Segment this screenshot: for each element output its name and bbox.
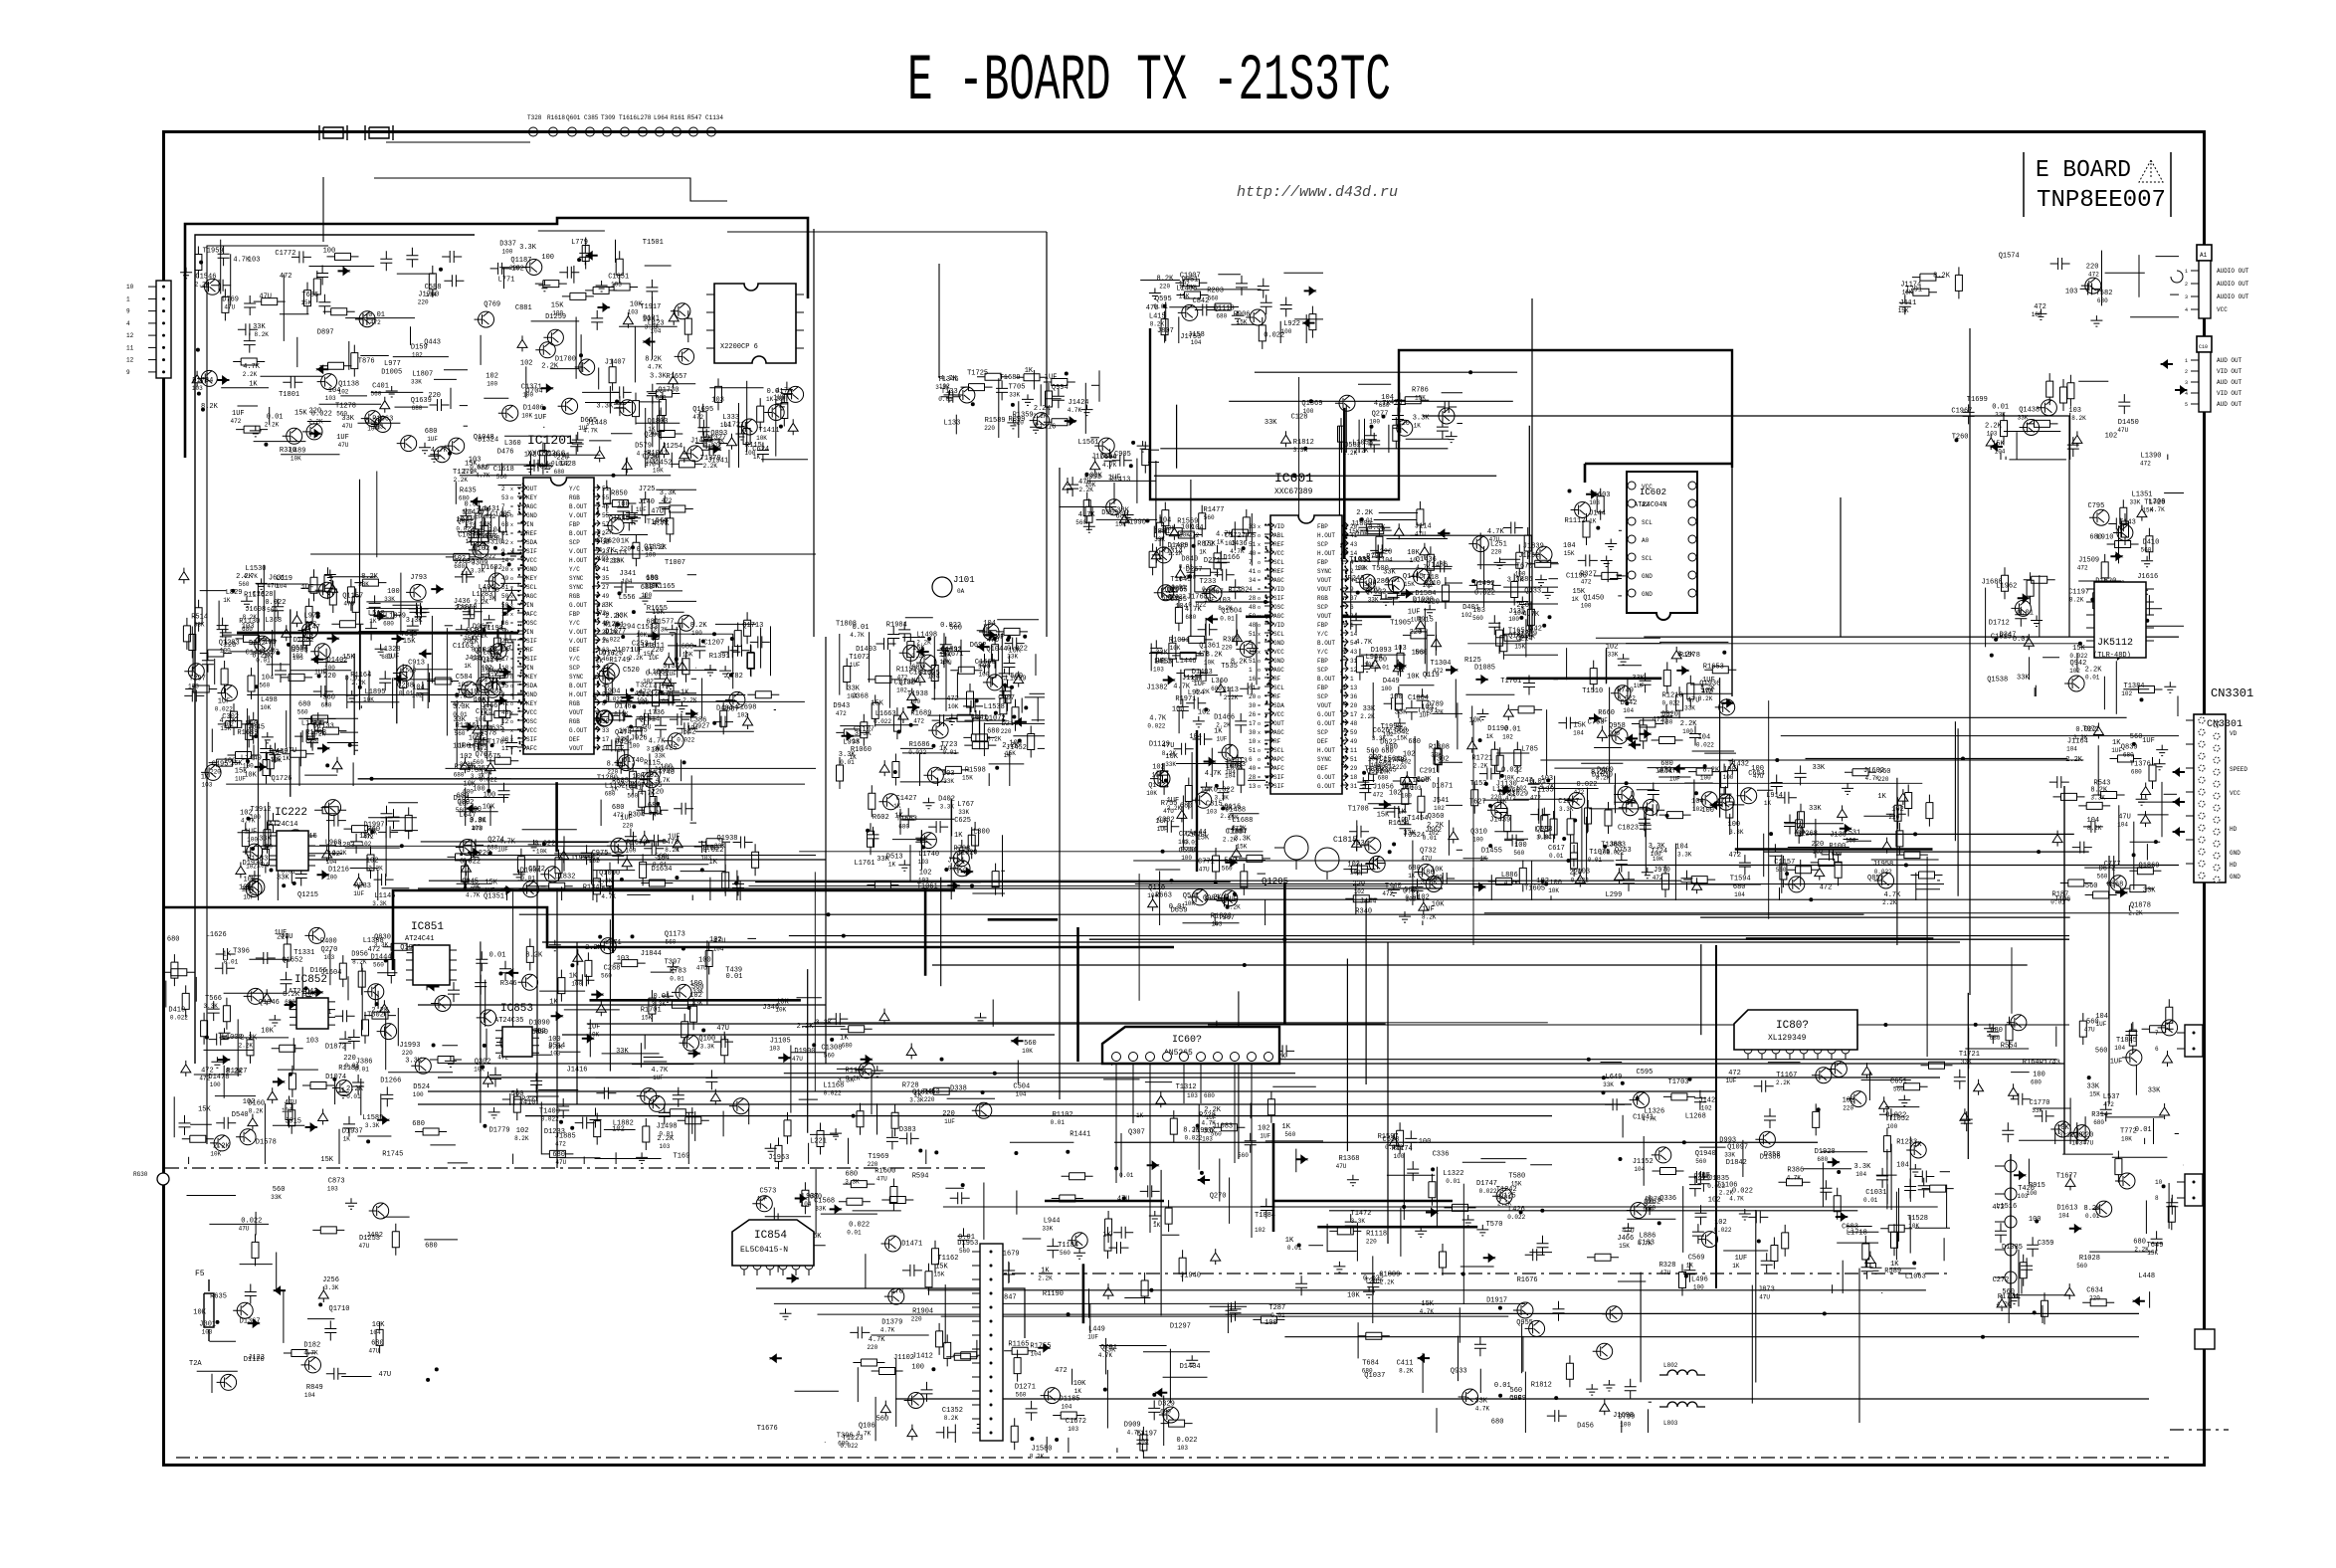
svg-text:100: 100 (1265, 1319, 1277, 1327)
svg-text:J310: J310 (487, 538, 503, 546)
svg-text:IC60?: IC60? (1172, 1035, 1202, 1046)
svg-text:L1498: L1498 (916, 632, 937, 640)
svg-text:33K: 33K (2017, 675, 2030, 683)
svg-text:2.2K: 2.2K (463, 469, 478, 476)
svg-text:B.OUT: B.OUT (569, 530, 587, 537)
svg-text:o: o (1258, 694, 1261, 700)
svg-text:x: x (1258, 730, 1261, 736)
svg-text:J418: J418 (465, 655, 482, 663)
svg-text:T1312: T1312 (1176, 1083, 1197, 1091)
svg-text:=: = (510, 621, 513, 627)
svg-text:R435: R435 (460, 487, 477, 494)
svg-text:4: 4 (1350, 559, 1354, 566)
svg-text:3.3K: 3.3K (2090, 794, 2105, 801)
svg-text:51: 51 (1350, 756, 1358, 763)
svg-text:C1665: C1665 (975, 659, 996, 667)
svg-text:D456: D456 (1577, 1422, 1594, 1430)
svg-text:104: 104 (1675, 843, 1688, 851)
svg-text:220: 220 (942, 1110, 955, 1118)
svg-text:H.OUT: H.OUT (1317, 532, 1335, 539)
svg-text:104: 104 (1734, 891, 1745, 898)
svg-text:T582: T582 (2096, 290, 2113, 297)
svg-text:2.2K: 2.2K (346, 1085, 364, 1093)
svg-text:Q1097: Q1097 (1727, 1144, 1748, 1152)
svg-text:J1412: J1412 (912, 1353, 933, 1361)
svg-text:Q1000: Q1000 (599, 870, 620, 878)
svg-text:10: 10 (126, 284, 134, 291)
svg-text:34: 34 (1350, 613, 1358, 620)
svg-text:0.01: 0.01 (2017, 610, 2034, 618)
svg-text:OSC: OSC (526, 718, 537, 725)
svg-text:100: 100 (698, 956, 711, 964)
svg-text:4.7K: 4.7K (1149, 714, 1167, 722)
svg-text:102: 102 (2121, 690, 2132, 697)
svg-text:D799: D799 (1619, 1413, 1636, 1421)
svg-text:IC854: IC854 (754, 1230, 787, 1242)
svg-text:D769: D769 (222, 296, 239, 304)
svg-text:T1162: T1162 (937, 1255, 958, 1263)
svg-text:=: = (510, 746, 513, 752)
svg-text:Q119: Q119 (1423, 672, 1440, 680)
svg-text:KEY: KEY (526, 494, 537, 501)
svg-text:51: 51 (1249, 658, 1257, 665)
svg-text:T535: T535 (1221, 663, 1238, 671)
svg-text:R1657: R1657 (667, 373, 687, 381)
svg-text:47U: 47U (696, 964, 707, 971)
svg-text:V.OUT: V.OUT (569, 629, 587, 636)
svg-text:472: 472 (231, 418, 242, 425)
svg-text:0.022: 0.022 (1662, 699, 1680, 706)
svg-text:47U: 47U (792, 1056, 803, 1063)
svg-text:DEF: DEF (569, 647, 580, 654)
svg-text:15K: 15K (642, 1015, 653, 1022)
svg-text:C842: C842 (1193, 297, 1210, 305)
svg-text:x: x (1258, 524, 1261, 530)
svg-text:D1324: D1324 (478, 436, 498, 444)
svg-text:AGC: AGC (1273, 613, 1284, 620)
svg-text:Q1730: Q1730 (658, 387, 679, 395)
svg-text:48: 48 (1249, 604, 1257, 611)
svg-text:J1608: J1608 (245, 606, 266, 614)
svg-text:0.01: 0.01 (399, 689, 414, 696)
svg-text:D1872: D1872 (325, 1043, 346, 1051)
svg-text:1UF: 1UF (459, 800, 470, 807)
svg-text:680: 680 (412, 1120, 425, 1128)
svg-text:4.7K: 4.7K (776, 388, 794, 396)
svg-text:D358: D358 (1764, 1151, 1781, 1159)
svg-text:4.7K: 4.7K (869, 1336, 886, 1344)
svg-text:8.2K: 8.2K (1162, 750, 1177, 757)
svg-text:4.7K: 4.7K (1173, 683, 1191, 690)
svg-text:J704: J704 (526, 388, 543, 396)
svg-text:VID: VID (1273, 622, 1284, 629)
svg-text:D1920: D1920 (1815, 1148, 1836, 1156)
svg-text:103: 103 (2068, 407, 2081, 415)
svg-text:G.OUT: G.OUT (1317, 711, 1335, 718)
svg-text:4.7K: 4.7K (1487, 528, 1505, 536)
svg-text:100: 100 (909, 698, 920, 705)
svg-text:0.022: 0.022 (170, 1014, 188, 1021)
svg-text:220: 220 (1491, 548, 1502, 555)
svg-text:C873: C873 (328, 1178, 345, 1186)
svg-text:x: x (510, 603, 513, 609)
svg-text:HD: HD (2230, 862, 2238, 869)
svg-text:8.2K: 8.2K (1399, 1368, 1414, 1375)
svg-text:31: 31 (1350, 783, 1358, 790)
svg-text:D476: D476 (497, 449, 514, 457)
svg-text:1UF: 1UF (1157, 826, 1168, 833)
svg-text:680: 680 (842, 1042, 853, 1049)
svg-text:560: 560 (1284, 1131, 1295, 1138)
svg-text:T1703: T1703 (1225, 761, 1246, 769)
svg-text:220: 220 (343, 1055, 356, 1063)
svg-text:680: 680 (1990, 1035, 2001, 1042)
svg-text:OUT: OUT (526, 486, 537, 492)
svg-text:4: 4 (1249, 586, 1253, 593)
svg-text:8.2K: 8.2K (987, 735, 1002, 742)
svg-text:1UF: 1UF (1669, 776, 1680, 783)
svg-text:L448: L448 (2138, 1273, 2155, 1280)
svg-text:Q1652: Q1652 (282, 957, 302, 965)
svg-text:33K: 33K (1995, 412, 2006, 419)
svg-text:104: 104 (304, 1392, 315, 1399)
svg-text:560: 560 (259, 682, 270, 688)
svg-text:100: 100 (1369, 418, 1380, 425)
svg-text:L675: L675 (485, 753, 501, 761)
svg-text:8.2K: 8.2K (525, 952, 543, 960)
svg-text:3.3K: 3.3K (596, 403, 614, 411)
svg-text:10K: 10K (1201, 787, 1214, 795)
svg-text:RF: RF (526, 647, 534, 654)
svg-text:o: o (510, 513, 513, 519)
svg-text:560: 560 (1208, 295, 1219, 302)
svg-text:C1546: C1546 (195, 274, 216, 282)
svg-text:0.01: 0.01 (453, 711, 468, 718)
svg-text:2: 2 (2185, 369, 2188, 375)
svg-text:100: 100 (484, 792, 496, 800)
svg-text:51: 51 (501, 584, 509, 591)
svg-text:D1297: D1297 (1170, 1322, 1191, 1330)
svg-text:D176: D176 (615, 702, 632, 710)
svg-text:560: 560 (496, 474, 507, 481)
svg-text:47U: 47U (267, 582, 278, 589)
svg-text:104: 104 (2117, 821, 2128, 828)
svg-text:Q782: Q782 (726, 673, 743, 681)
svg-text:3.3K: 3.3K (365, 1122, 380, 1129)
svg-text:RG30: RG30 (133, 1171, 148, 1178)
svg-text:T1486: T1486 (1427, 562, 1448, 570)
svg-text:Q1938: Q1938 (717, 835, 738, 843)
svg-text:33K: 33K (847, 686, 860, 693)
svg-text:680: 680 (1817, 1156, 1828, 1163)
svg-text:3.3K: 3.3K (911, 653, 926, 660)
svg-text:T876: T876 (358, 357, 375, 365)
svg-text:100: 100 (458, 742, 471, 750)
svg-text:103: 103 (1138, 1438, 1149, 1445)
svg-text:D210: D210 (1002, 720, 1019, 728)
svg-text:J1940: J1940 (1180, 1272, 1201, 1279)
svg-text:J140: J140 (638, 498, 655, 506)
svg-text:AT24C04N: AT24C04N (1634, 501, 1667, 509)
svg-text:42: 42 (602, 557, 610, 564)
svg-text:T627: T627 (1469, 799, 1486, 807)
svg-text:=: = (1258, 766, 1261, 772)
svg-text:103: 103 (1987, 430, 1998, 437)
svg-text:102: 102 (480, 768, 492, 776)
svg-text:1K: 1K (549, 998, 558, 1006)
svg-text:220: 220 (1397, 420, 1410, 428)
svg-text:1K: 1K (249, 380, 258, 388)
svg-text:104: 104 (1855, 1171, 1866, 1178)
svg-text:L1688: L1688 (1232, 817, 1253, 825)
svg-text:R1984: R1984 (886, 622, 907, 630)
svg-text:33K: 33K (958, 809, 969, 816)
svg-text:560: 560 (2085, 882, 2098, 890)
svg-text:2.2K: 2.2K (243, 371, 258, 378)
svg-text:10K: 10K (1503, 775, 1514, 782)
svg-text:31: 31 (1350, 658, 1358, 665)
svg-text:0.022: 0.022 (840, 1443, 858, 1450)
svg-text:3.3K: 3.3K (1215, 794, 1230, 801)
svg-text:=: = (510, 531, 513, 537)
svg-text:0.01: 0.01 (1405, 894, 1420, 901)
svg-text:680: 680 (2131, 769, 2142, 776)
svg-text:0.01: 0.01 (649, 810, 664, 817)
svg-text:15K: 15K (1377, 812, 1390, 820)
svg-text:OUT: OUT (1273, 720, 1284, 727)
svg-text:103: 103 (2018, 1193, 2029, 1200)
svg-text:D524: D524 (413, 1083, 430, 1091)
svg-text:0.01: 0.01 (368, 311, 385, 319)
svg-text:AUDIO OUT: AUDIO OUT (2217, 294, 2249, 300)
svg-text:100: 100 (541, 254, 554, 262)
svg-text:L886: L886 (1640, 1232, 1656, 1240)
svg-text:102: 102 (458, 682, 469, 688)
svg-text:9: 9 (602, 709, 606, 716)
svg-text:472: 472 (2103, 1101, 2114, 1108)
svg-text:Q1422: Q1422 (1148, 782, 1169, 790)
svg-text:T1959: T1959 (203, 247, 224, 255)
svg-text:0.022: 0.022 (1385, 1144, 1403, 1151)
svg-text:F5: F5 (195, 1270, 205, 1278)
svg-text:472: 472 (639, 689, 652, 697)
svg-text:R1116: R1116 (456, 722, 477, 730)
svg-text:Q1940: Q1940 (1695, 1150, 1716, 1158)
svg-text:9: 9 (501, 548, 505, 555)
svg-text:2.2K: 2.2K (1034, 405, 1052, 413)
svg-text:D672: D672 (2099, 866, 2116, 874)
svg-text:15K: 15K (320, 1156, 333, 1164)
svg-text:15K: 15K (1237, 844, 1248, 851)
svg-text:2.2K: 2.2K (265, 421, 280, 428)
svg-text:560: 560 (1222, 865, 1233, 872)
svg-text:680: 680 (1990, 1027, 2003, 1035)
svg-text:3.3K: 3.3K (1729, 829, 1744, 836)
svg-text:C584: C584 (456, 674, 473, 682)
svg-text:1UF: 1UF (588, 1024, 601, 1032)
svg-text:102: 102 (896, 687, 907, 694)
svg-text:=: = (510, 558, 513, 564)
svg-text:15K: 15K (551, 302, 564, 310)
svg-text:33K: 33K (714, 843, 725, 850)
svg-text:KEY: KEY (526, 700, 537, 707)
svg-text:8.2K: 8.2K (1933, 272, 1951, 280)
svg-text:10K: 10K (521, 412, 532, 419)
svg-text:100: 100 (1394, 1153, 1405, 1160)
svg-text:Q1485: Q1485 (1403, 573, 1424, 581)
svg-text:3.3K: 3.3K (700, 1044, 715, 1051)
svg-text:4.7K: 4.7K (651, 1067, 669, 1075)
svg-text:33K: 33K (259, 836, 272, 844)
svg-text:REF: REF (526, 530, 537, 537)
svg-text:Q1695: Q1695 (692, 406, 713, 414)
svg-text:560: 560 (691, 984, 704, 992)
svg-text:C1004: C1004 (1408, 694, 1429, 702)
svg-text:2.2K: 2.2K (240, 1034, 258, 1042)
svg-text:104: 104 (426, 292, 437, 298)
svg-text:L771: L771 (498, 276, 515, 284)
svg-text:VOUT: VOUT (569, 745, 584, 752)
svg-text:J915: J915 (285, 1117, 301, 1125)
svg-text:1K: 1K (1408, 873, 1416, 880)
svg-text:4.7K: 4.7K (1205, 770, 1223, 778)
svg-text:C795: C795 (2088, 502, 2105, 510)
svg-text:33K: 33K (1116, 506, 1129, 514)
svg-text:C1907: C1907 (1180, 273, 1201, 281)
svg-text:Q958: Q958 (1609, 722, 1626, 730)
svg-text:220: 220 (867, 1344, 877, 1351)
svg-text:0.022: 0.022 (1707, 1183, 1725, 1190)
svg-text:0.01: 0.01 (1119, 1172, 1134, 1179)
svg-text:1UF: 1UF (944, 1118, 955, 1125)
svg-text:100: 100 (1169, 594, 1180, 601)
svg-text:10K: 10K (1146, 790, 1157, 797)
svg-text:10K: 10K (1073, 1380, 1086, 1388)
svg-text:3: 3 (501, 691, 505, 698)
svg-text:D665: D665 (580, 417, 597, 425)
svg-text:104: 104 (412, 684, 425, 691)
svg-text:D1953: D1953 (957, 1240, 978, 1248)
svg-text:33K: 33K (411, 378, 422, 385)
svg-text:680: 680 (2031, 1078, 2042, 1085)
svg-text:10K: 10K (1653, 856, 1663, 863)
svg-text:4.7K: 4.7K (303, 1350, 318, 1357)
svg-text:104: 104 (651, 327, 662, 334)
svg-text:30: 30 (602, 539, 610, 546)
svg-text:L1626: L1626 (206, 931, 227, 939)
svg-text:4.7K: 4.7K (940, 375, 958, 383)
svg-text:33K: 33K (277, 875, 290, 882)
svg-text:1UF: 1UF (653, 1075, 664, 1081)
svg-text:560: 560 (1211, 1131, 1222, 1138)
svg-text:L537: L537 (2103, 1093, 2120, 1101)
svg-text:8.2K: 8.2K (1030, 1454, 1045, 1461)
svg-text:0.01: 0.01 (1287, 1245, 1302, 1252)
svg-text:0.022: 0.022 (541, 1115, 559, 1122)
svg-text:D1190: D1190 (1487, 725, 1508, 733)
svg-text:55: 55 (602, 718, 610, 725)
svg-text:100: 100 (469, 806, 482, 814)
svg-text:T971: T971 (2082, 725, 2099, 733)
svg-text:10K: 10K (210, 1151, 221, 1158)
svg-text:3.3K: 3.3K (909, 1096, 924, 1103)
svg-text:SYNC: SYNC (569, 584, 584, 591)
svg-text:25: 25 (501, 638, 509, 645)
svg-text:1: 1 (2185, 269, 2188, 275)
svg-text:0.022: 0.022 (1507, 1214, 1525, 1221)
svg-text:C302: C302 (222, 713, 239, 721)
svg-text:103: 103 (711, 397, 724, 405)
svg-text:3.3K: 3.3K (406, 617, 424, 625)
svg-text:1UF: 1UF (850, 662, 861, 669)
svg-text:L368: L368 (265, 617, 282, 625)
svg-text:11: 11 (126, 344, 134, 351)
svg-text:560: 560 (1695, 1158, 1706, 1165)
svg-text:4.7K: 4.7K (1420, 1308, 1435, 1315)
svg-text:J1029: J1029 (1507, 791, 1528, 799)
svg-text:Q1803: Q1803 (648, 418, 669, 426)
svg-text:100: 100 (1281, 328, 1292, 335)
svg-text:47U: 47U (1117, 1196, 1130, 1204)
svg-text:104: 104 (2114, 1045, 2125, 1052)
svg-text:T287: T287 (1268, 1304, 1285, 1312)
svg-text:680: 680 (554, 469, 565, 476)
svg-text:L496: L496 (1691, 1275, 1708, 1283)
svg-text:D166: D166 (1223, 554, 1240, 562)
svg-text:220: 220 (623, 823, 634, 830)
svg-text:1: 1 (1249, 667, 1253, 674)
svg-text:1UF: 1UF (668, 833, 681, 841)
svg-text:x: x (510, 737, 513, 743)
svg-text:Y/C: Y/C (569, 486, 580, 492)
svg-text:1K: 1K (1102, 1231, 1111, 1239)
svg-text:0.01: 0.01 (1992, 404, 2009, 412)
svg-text:220: 220 (1366, 1238, 1377, 1245)
svg-text:0.022: 0.022 (480, 776, 497, 783)
svg-text:1K: 1K (1414, 423, 1422, 430)
svg-text:560: 560 (1024, 1040, 1037, 1048)
svg-text:104: 104 (1896, 1162, 1909, 1170)
svg-text:0.022: 0.022 (849, 1221, 870, 1229)
svg-text:R906: R906 (1234, 311, 1251, 319)
svg-text:D1404: D1404 (1180, 1363, 1201, 1371)
svg-text:R1368: R1368 (1339, 1155, 1360, 1163)
svg-text:0.022: 0.022 (265, 599, 286, 607)
svg-text:T1605: T1605 (1524, 885, 1545, 893)
svg-text:x: x (510, 522, 513, 528)
svg-text:T1184: T1184 (1058, 1242, 1078, 1250)
svg-text:0.01: 0.01 (847, 1229, 862, 1236)
svg-text:36: 36 (1350, 693, 1358, 700)
svg-text:C595: C595 (1637, 1069, 1654, 1077)
svg-text:0.01: 0.01 (1386, 577, 1401, 584)
svg-text:9: 9 (126, 308, 130, 315)
svg-text:L978: L978 (304, 613, 321, 621)
svg-text:XXC67389: XXC67389 (1274, 488, 1313, 496)
svg-text:R514: R514 (191, 614, 208, 622)
svg-text:0.01: 0.01 (345, 676, 362, 684)
svg-text:R1598: R1598 (965, 767, 986, 775)
svg-text:C1851: C1851 (608, 273, 629, 281)
svg-text:Q270: Q270 (321, 946, 338, 954)
svg-text:10: 10 (602, 745, 610, 752)
svg-text:Q732: Q732 (1420, 848, 1437, 856)
svg-text:104: 104 (2066, 746, 2077, 753)
svg-text:Y/C: Y/C (569, 620, 580, 627)
svg-text:T1616: T1616 (619, 114, 637, 121)
svg-text:28: 28 (1249, 774, 1257, 781)
svg-text:1UF: 1UF (232, 410, 245, 418)
